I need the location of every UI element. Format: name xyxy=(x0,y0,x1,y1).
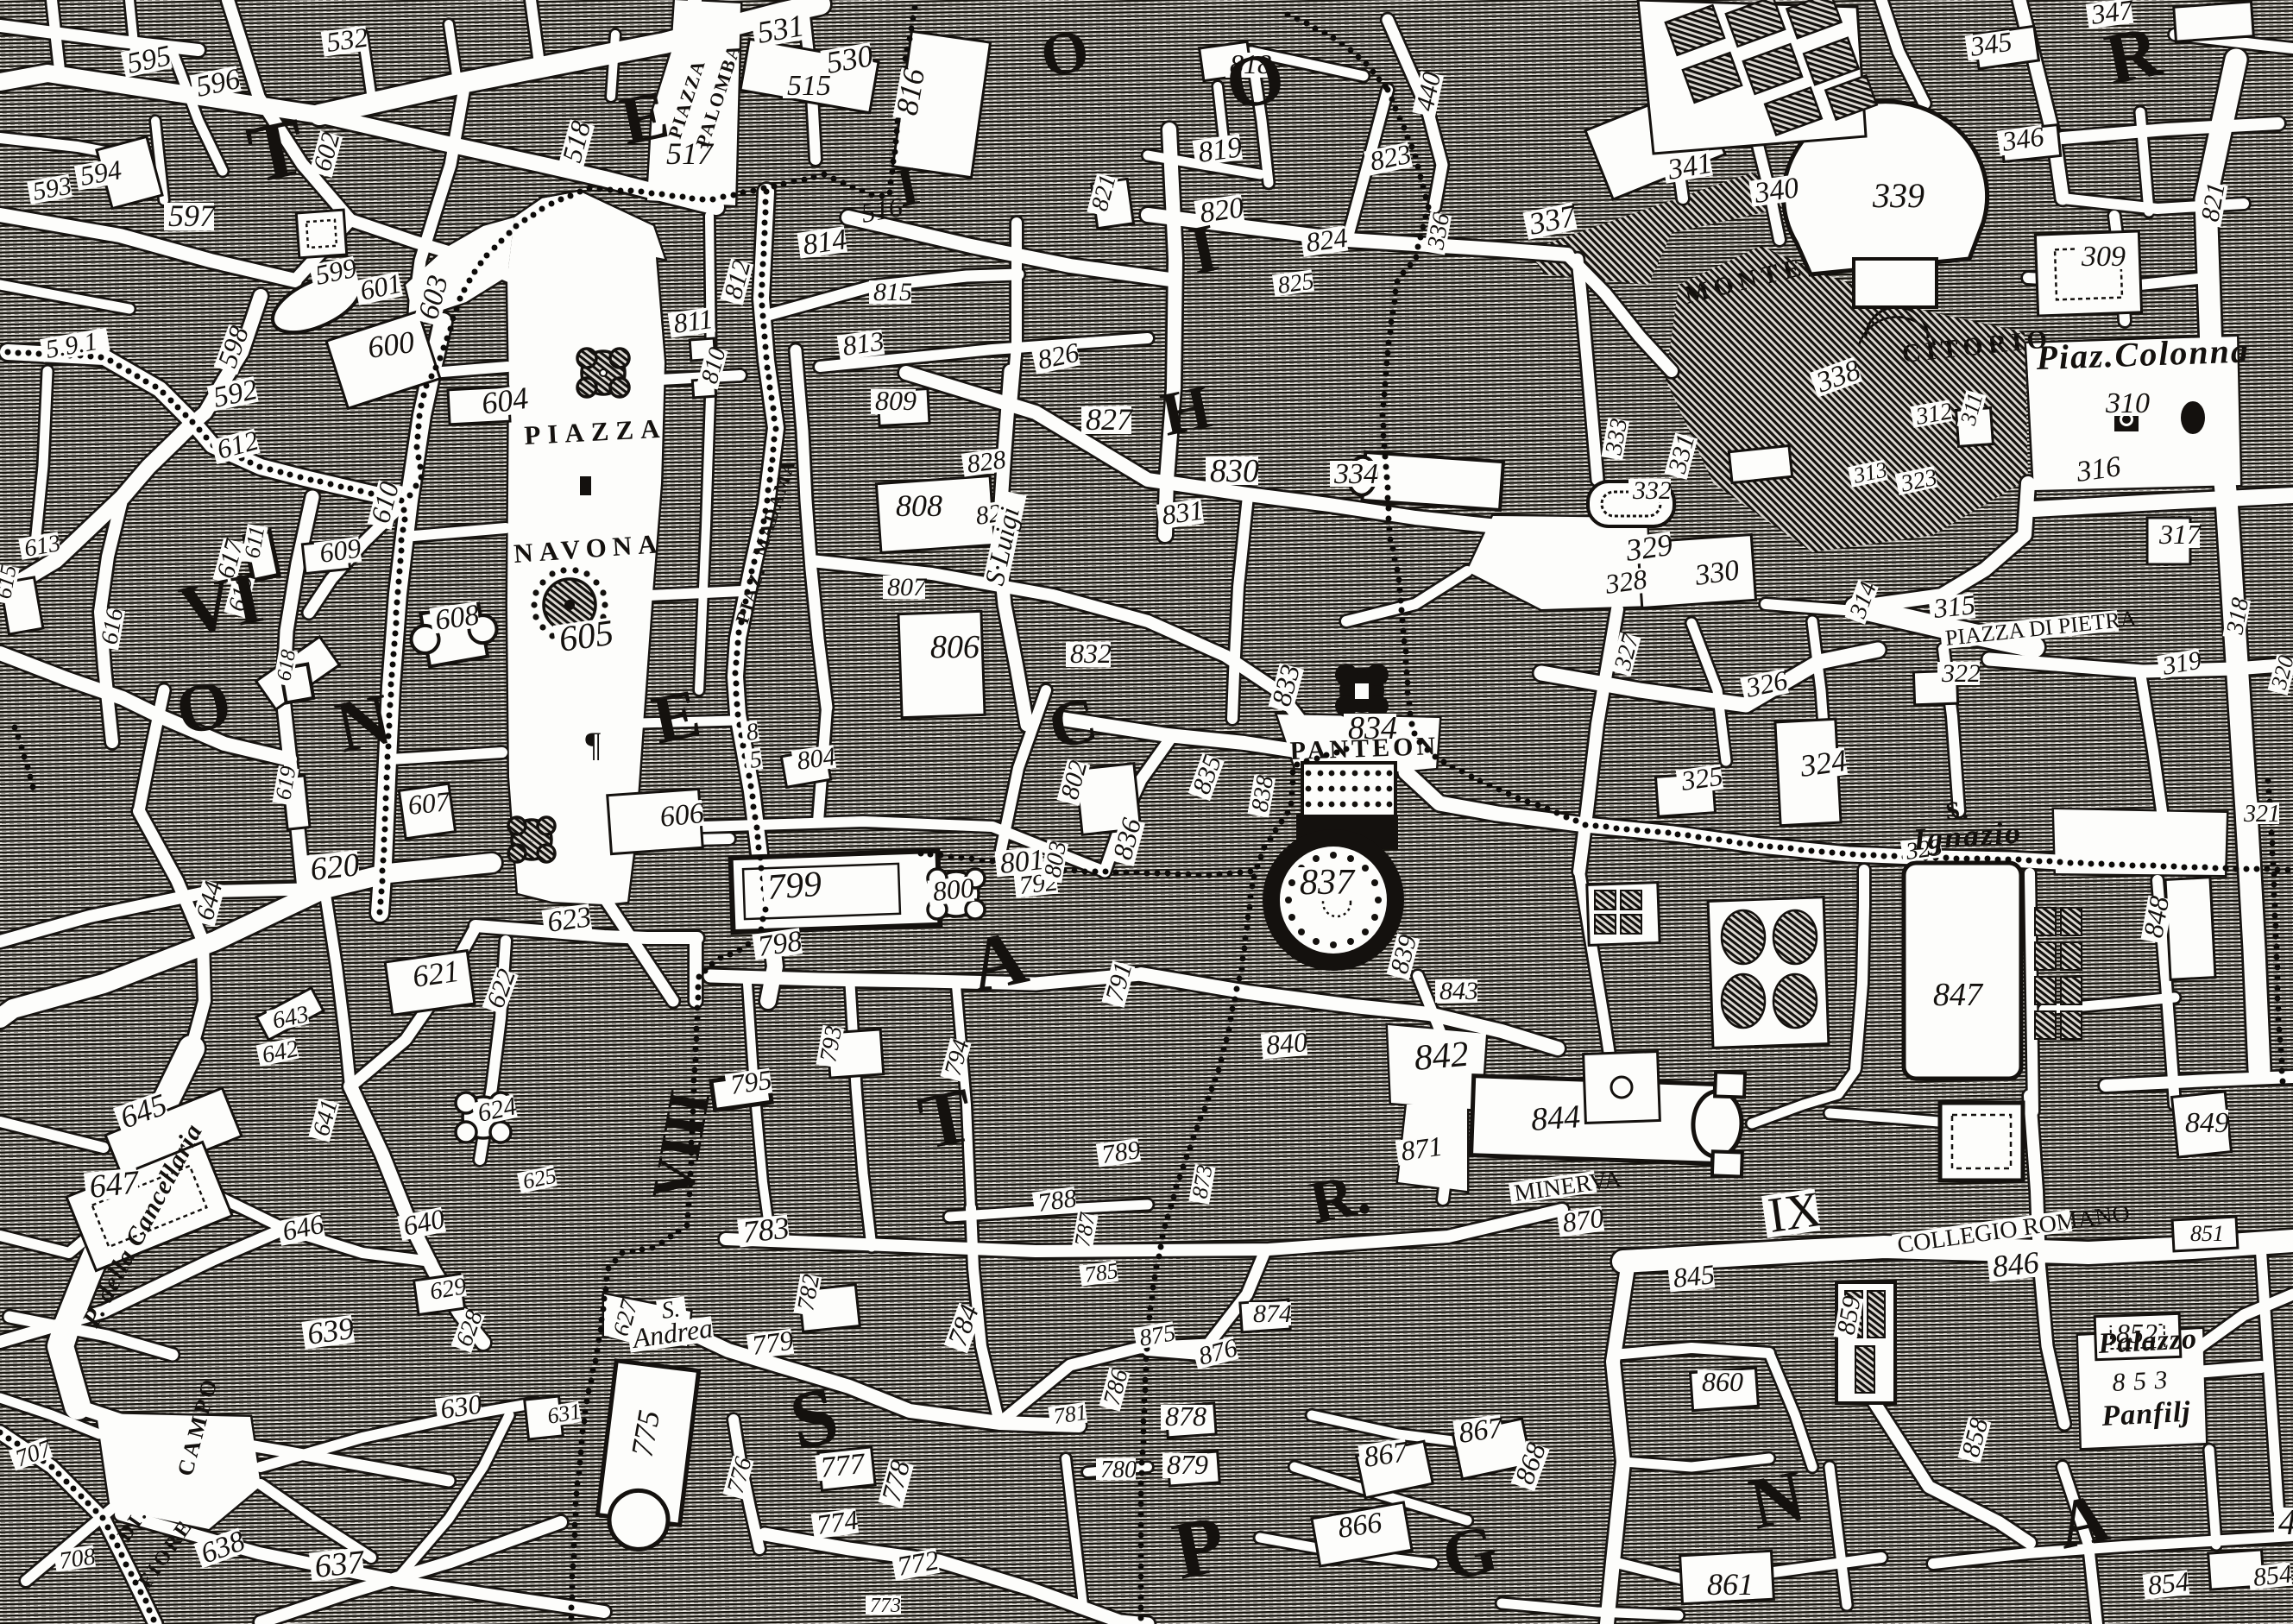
svg-text:804: 804 xyxy=(795,742,837,776)
svg-text:866: 866 xyxy=(1336,1507,1384,1545)
svg-text:840: 840 xyxy=(1264,1026,1308,1061)
svg-text:832: 832 xyxy=(1070,638,1112,669)
svg-text:773: 773 xyxy=(870,1595,901,1617)
svg-text:806: 806 xyxy=(930,629,980,665)
svg-text:801: 801 xyxy=(998,844,1046,880)
svg-text:879: 879 xyxy=(1167,1449,1208,1480)
svg-text:Palazzo: Palazzo xyxy=(2096,1323,2197,1360)
svg-text:600: 600 xyxy=(366,324,417,365)
svg-text:639: 639 xyxy=(306,1311,356,1351)
svg-text:854: 854 xyxy=(2146,1565,2191,1601)
svg-text:845: 845 xyxy=(1672,1258,1717,1294)
svg-text:795: 795 xyxy=(728,1064,774,1100)
svg-text:4: 4 xyxy=(2278,1503,2293,1543)
svg-text:799: 799 xyxy=(765,865,822,908)
svg-text:842: 842 xyxy=(1413,1035,1471,1079)
svg-text:310: 310 xyxy=(2105,387,2150,419)
svg-text:815: 815 xyxy=(873,278,912,306)
svg-text:317: 317 xyxy=(2158,519,2202,550)
svg-text:607: 607 xyxy=(406,785,452,821)
svg-text:630: 630 xyxy=(438,1388,484,1425)
svg-text:322: 322 xyxy=(1941,659,1981,688)
svg-text:843: 843 xyxy=(1439,977,1478,1005)
svg-text:854: 854 xyxy=(2252,1559,2293,1592)
svg-text:345: 345 xyxy=(1968,26,2014,62)
svg-text:VI: VI xyxy=(173,557,269,653)
svg-text:316: 316 xyxy=(2074,450,2123,488)
svg-text:Piaz.Colonna: Piaz.Colonna xyxy=(2035,330,2251,377)
svg-text:789: 789 xyxy=(1099,1136,1142,1169)
svg-text:846: 846 xyxy=(1991,1245,2041,1284)
svg-text:606: 606 xyxy=(658,797,706,834)
svg-text:779: 779 xyxy=(750,1325,796,1361)
svg-text:819: 819 xyxy=(1196,131,1244,169)
svg-text:780: 780 xyxy=(1100,1457,1137,1483)
svg-text:827: 827 xyxy=(1086,402,1134,437)
svg-text:783: 783 xyxy=(741,1211,791,1249)
svg-text:8 5 3: 8 5 3 xyxy=(2112,1366,2170,1397)
svg-text:Panfilj: Panfilj xyxy=(2100,1396,2191,1432)
svg-text:800: 800 xyxy=(931,872,976,907)
svg-text:339: 339 xyxy=(1872,176,1924,215)
svg-text:808: 808 xyxy=(896,488,942,523)
svg-text:807: 807 xyxy=(887,573,928,601)
svg-text:871: 871 xyxy=(1399,1130,1445,1167)
svg-text:825: 825 xyxy=(1276,268,1316,299)
svg-text:814: 814 xyxy=(801,223,849,261)
svg-text:325: 325 xyxy=(1679,760,1725,796)
svg-text:334: 334 xyxy=(1333,458,1378,490)
svg-text:811: 811 xyxy=(671,303,715,339)
svg-text:831: 831 xyxy=(1160,494,1206,531)
svg-text:309: 309 xyxy=(2081,241,2126,273)
svg-text:785: 785 xyxy=(1083,1258,1120,1287)
svg-text:324: 324 xyxy=(1798,743,1849,784)
svg-text:321: 321 xyxy=(2243,801,2280,828)
svg-text:874: 874 xyxy=(1253,1300,1292,1328)
svg-text:332: 332 xyxy=(1632,476,1672,505)
svg-text:604: 604 xyxy=(480,381,531,421)
svg-text:328: 328 xyxy=(1603,563,1649,600)
svg-text:340: 340 xyxy=(1752,172,1801,210)
svg-text:PANTEON: PANTEON xyxy=(1289,732,1439,765)
svg-text:315: 315 xyxy=(1931,589,1976,624)
svg-text:708: 708 xyxy=(58,1543,98,1575)
svg-text:849: 849 xyxy=(2185,1107,2229,1139)
svg-text:515: 515 xyxy=(787,70,831,102)
svg-text:597: 597 xyxy=(168,198,217,233)
svg-text:637: 637 xyxy=(313,1544,368,1585)
svg-text:830: 830 xyxy=(1210,453,1259,489)
svg-text:346: 346 xyxy=(2000,121,2046,157)
svg-text:837: 837 xyxy=(1300,863,1356,903)
svg-text:¶: ¶ xyxy=(583,725,602,764)
svg-text:IX: IX xyxy=(1765,1180,1825,1243)
svg-text:329: 329 xyxy=(1623,527,1675,568)
svg-text:847: 847 xyxy=(1933,977,1984,1013)
svg-text:844: 844 xyxy=(1530,1098,1582,1138)
svg-text:870: 870 xyxy=(1560,1202,1606,1238)
svg-text:867: 867 xyxy=(1457,1412,1507,1450)
svg-text:605: 605 xyxy=(557,614,616,660)
svg-text:774: 774 xyxy=(815,1504,860,1540)
svg-text:878: 878 xyxy=(1165,1401,1206,1432)
svg-text:860: 860 xyxy=(1702,1366,1743,1397)
svg-text:330: 330 xyxy=(1692,554,1742,592)
svg-text:851: 851 xyxy=(2190,1221,2224,1246)
svg-text:532: 532 xyxy=(324,22,370,58)
svg-text:813: 813 xyxy=(841,325,886,362)
svg-text:867: 867 xyxy=(1362,1436,1412,1474)
svg-text:609: 609 xyxy=(318,532,363,569)
svg-text:828: 828 xyxy=(965,445,1007,479)
svg-text:647: 647 xyxy=(88,1164,142,1205)
svg-text:798: 798 xyxy=(756,925,804,963)
svg-text:623: 623 xyxy=(545,901,594,939)
svg-text:809: 809 xyxy=(875,385,917,416)
svg-text:861: 861 xyxy=(1707,1567,1754,1602)
svg-text:608: 608 xyxy=(433,599,482,637)
svg-text:620: 620 xyxy=(309,847,362,888)
svg-text:781: 781 xyxy=(1052,1400,1089,1429)
svg-text:824: 824 xyxy=(1304,222,1350,258)
svg-text:788: 788 xyxy=(1036,1184,1078,1218)
svg-text:621: 621 xyxy=(411,954,462,994)
